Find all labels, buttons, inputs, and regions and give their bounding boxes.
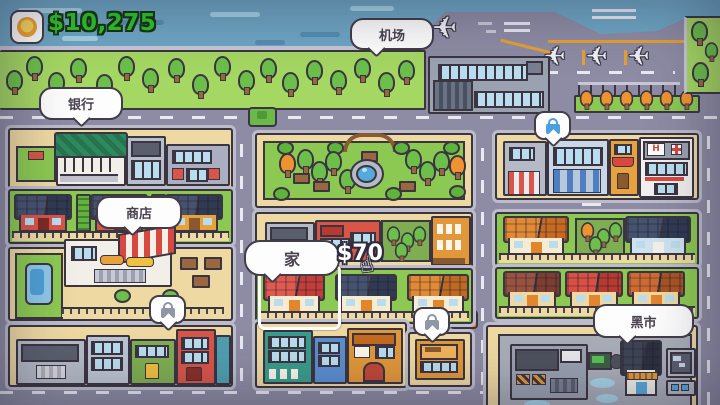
sign — [28, 151, 44, 160]
office-building[interactable] — [166, 144, 230, 186]
house-brown-roof[interactable] — [503, 271, 561, 309]
bank-columns — [64, 158, 114, 172]
park-arch — [343, 133, 397, 152]
tree-icon — [691, 21, 708, 42]
block-houses-right-upper[interactable] — [495, 212, 699, 266]
market-house[interactable] — [620, 340, 662, 396]
dumpster — [588, 352, 612, 370]
taxiing-plane-icon: ✈ — [432, 14, 457, 44]
house-navy-roof[interactable] — [335, 274, 397, 314]
house-front — [19, 215, 67, 232]
gate-line — [624, 50, 627, 65]
puddle — [524, 400, 550, 405]
storefront — [94, 269, 146, 283]
bank-label-bubble[interactable]: 银行 — [39, 87, 123, 120]
tree-patch — [381, 220, 431, 262]
office-building[interactable] — [126, 136, 166, 186]
fence — [62, 307, 224, 317]
window-strip — [474, 91, 544, 108]
red-building-locked[interactable] — [176, 329, 216, 385]
pillars — [553, 169, 601, 193]
apron-dashes — [545, 71, 675, 74]
orange-building[interactable] — [347, 328, 403, 384]
orange-tree-icon — [660, 90, 673, 106]
restaurant-building[interactable] — [64, 239, 172, 287]
blue-building[interactable] — [313, 336, 347, 384]
tree-icon — [705, 42, 718, 58]
block-restaurant[interactable] — [8, 247, 233, 321]
arch-door — [363, 362, 385, 382]
black-market-label: 黑市 — [630, 312, 656, 331]
bank-building[interactable] — [56, 132, 126, 186]
airport-label: 机场 — [379, 25, 405, 44]
garage-door — [550, 378, 578, 393]
teal-building[interactable] — [263, 330, 313, 384]
road-centerline — [0, 391, 486, 394]
striped-facade — [508, 171, 540, 195]
roof-panel — [21, 344, 79, 362]
runway-marking — [504, 18, 530, 32]
block-orange-locked[interactable] — [408, 332, 472, 387]
hospital-sign: H — [647, 143, 665, 156]
shop-building[interactable] — [609, 139, 639, 196]
roof-box — [526, 61, 543, 75]
gray-building[interactable] — [16, 339, 86, 385]
orange-tree-icon — [620, 90, 633, 106]
locked-district-bubble[interactable] — [534, 111, 571, 140]
parked-plane-icon: ✈ — [628, 44, 650, 70]
bank-roof — [54, 132, 128, 158]
hospital-building[interactable]: H — [639, 137, 694, 198]
hazard-stripe — [516, 374, 530, 385]
home-label-bubble[interactable]: 家 — [244, 240, 340, 276]
awning — [612, 157, 634, 167]
parked-plane-icon: ✈ — [586, 44, 608, 70]
blue-building[interactable] — [86, 335, 130, 385]
house-navy-roof[interactable] — [625, 216, 691, 256]
park-lawn — [263, 141, 465, 200]
orange-tree-icon — [640, 90, 653, 106]
block-mixed-mid[interactable] — [255, 322, 407, 388]
block-bank-row[interactable] — [8, 128, 233, 189]
door-icon — [145, 363, 159, 379]
fountain — [350, 159, 384, 189]
orange-tree-icon — [279, 153, 296, 174]
fence — [499, 253, 695, 263]
arched-windows — [437, 240, 461, 250]
block-commercial-right[interactable]: H — [495, 133, 699, 200]
produce-shelf — [126, 257, 154, 267]
airport-label-bubble[interactable]: 机场 — [350, 18, 434, 50]
black-market-label-bubble[interactable]: 黑市 — [593, 304, 694, 338]
money-counter: $10,275 — [48, 10, 156, 36]
green-building[interactable] — [130, 339, 176, 385]
road-centerline — [707, 130, 710, 405]
shop-label: 商店 — [126, 203, 152, 222]
airport-terminal[interactable] — [428, 56, 550, 114]
window-strip — [131, 160, 161, 180]
red-cross-icon — [671, 144, 682, 155]
blue-building[interactable] — [547, 139, 609, 196]
table — [180, 257, 198, 270]
door-icon — [617, 173, 629, 189]
puddle — [590, 378, 615, 388]
tower-building[interactable] — [503, 141, 547, 196]
bush — [114, 289, 131, 303]
orange-building-locked[interactable] — [415, 339, 465, 380]
orange-building[interactable] — [431, 216, 471, 266]
bank-steps — [60, 174, 118, 182]
contrail — [478, 22, 492, 25]
pool-water — [30, 269, 44, 295]
bench — [399, 181, 416, 192]
terminal-tower — [433, 80, 473, 111]
produce-shelf — [100, 255, 124, 265]
window-strip — [172, 150, 212, 164]
machine-panel[interactable] — [666, 380, 696, 396]
machine-panel[interactable] — [666, 348, 696, 378]
tree-icon — [692, 62, 709, 83]
sun-coin-icon — [17, 17, 37, 37]
arched-windows — [268, 369, 302, 379]
arched-windows — [437, 224, 461, 234]
puddle — [596, 394, 618, 403]
house-orange-roof[interactable] — [503, 216, 569, 256]
road-centerline — [481, 135, 484, 385]
road-centerline — [240, 135, 243, 381]
hedge — [76, 194, 91, 232]
block-mixed-left[interactable] — [8, 325, 233, 387]
awning — [626, 372, 658, 380]
window-strip — [71, 246, 97, 261]
pool-lawn — [15, 253, 63, 319]
house[interactable] — [14, 194, 72, 232]
block-park[interactable] — [255, 133, 473, 208]
orange-tree-icon — [600, 90, 613, 106]
table — [204, 257, 222, 270]
airport-green-corner — [684, 16, 720, 94]
roof-panel — [131, 141, 161, 157]
runway-marking — [592, 5, 636, 19]
window-strip — [438, 64, 528, 81]
tree-patch — [575, 218, 625, 258]
lock-icon — [161, 308, 175, 318]
table — [192, 275, 210, 288]
orange-tree-icon — [449, 155, 466, 176]
garage-door — [36, 365, 66, 379]
home-label: 家 — [284, 246, 300, 270]
coin-badge — [10, 10, 44, 44]
locked-building-bubble[interactable] — [149, 295, 186, 324]
game-screen: ✈ ✈ ✈ ✈ — [0, 0, 720, 405]
bank-lawn — [16, 146, 56, 182]
warehouse[interactable] — [510, 344, 588, 400]
airport-tree-strip — [574, 95, 700, 113]
gate-line — [582, 50, 585, 65]
contrail — [486, 30, 496, 33]
taxiway-line — [548, 40, 696, 43]
hazard-stripe — [532, 374, 546, 385]
shop-label-bubble[interactable]: 商店 — [96, 196, 182, 229]
green-car — [248, 107, 277, 127]
market-ground — [498, 334, 692, 405]
orange-tree-icon — [580, 90, 593, 106]
lock-icon — [425, 320, 439, 330]
window-strip — [186, 168, 208, 182]
bench — [293, 173, 310, 184]
door-icon — [186, 367, 202, 381]
locked-building-bubble[interactable] — [413, 307, 450, 336]
teal-building[interactable] — [215, 335, 231, 385]
lock-icon — [546, 124, 560, 134]
bench — [313, 181, 330, 192]
bank-label: 银行 — [68, 94, 94, 113]
